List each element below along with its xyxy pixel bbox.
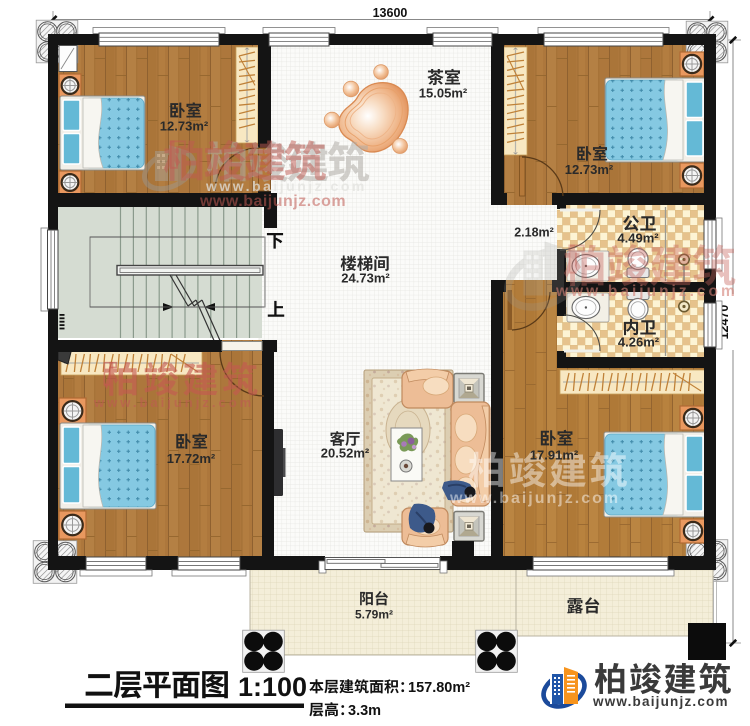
svg-text:157.80m²: 157.80m²	[408, 680, 470, 696]
svg-text:www.baijunjz.com: www.baijunjz.com	[449, 490, 620, 507]
svg-text:www.baijunjz.com: www.baijunjz.com	[592, 694, 729, 709]
svg-text:www.baijunjz.com: www.baijunjz.com	[93, 395, 254, 410]
svg-text:3.3m: 3.3m	[348, 703, 381, 719]
svg-text:5.79m²: 5.79m²	[355, 608, 393, 622]
svg-text:4.49m²: 4.49m²	[617, 231, 659, 246]
svg-text:12.73m²: 12.73m²	[565, 162, 614, 177]
svg-text:17.72m²: 17.72m²	[167, 451, 216, 466]
svg-text:15.05m²: 15.05m²	[419, 86, 468, 101]
svg-text:1:100: 1:100	[238, 672, 307, 702]
svg-text:24.73m²: 24.73m²	[341, 271, 390, 286]
svg-text:www.baijunjz.com: www.baijunjz.com	[555, 283, 738, 300]
svg-text:2.18m²: 2.18m²	[514, 226, 554, 240]
svg-text:www.baijunjz.com: www.baijunjz.com	[205, 178, 367, 194]
svg-text:www.baijunjz.com: www.baijunjz.com	[199, 193, 346, 210]
svg-text:4.26m²: 4.26m²	[618, 335, 660, 350]
svg-text:13600: 13600	[373, 6, 408, 20]
svg-text:17.91m²: 17.91m²	[530, 448, 579, 463]
svg-text:12.73m²: 12.73m²	[160, 119, 209, 134]
svg-text:20.52m²: 20.52m²	[321, 446, 370, 461]
